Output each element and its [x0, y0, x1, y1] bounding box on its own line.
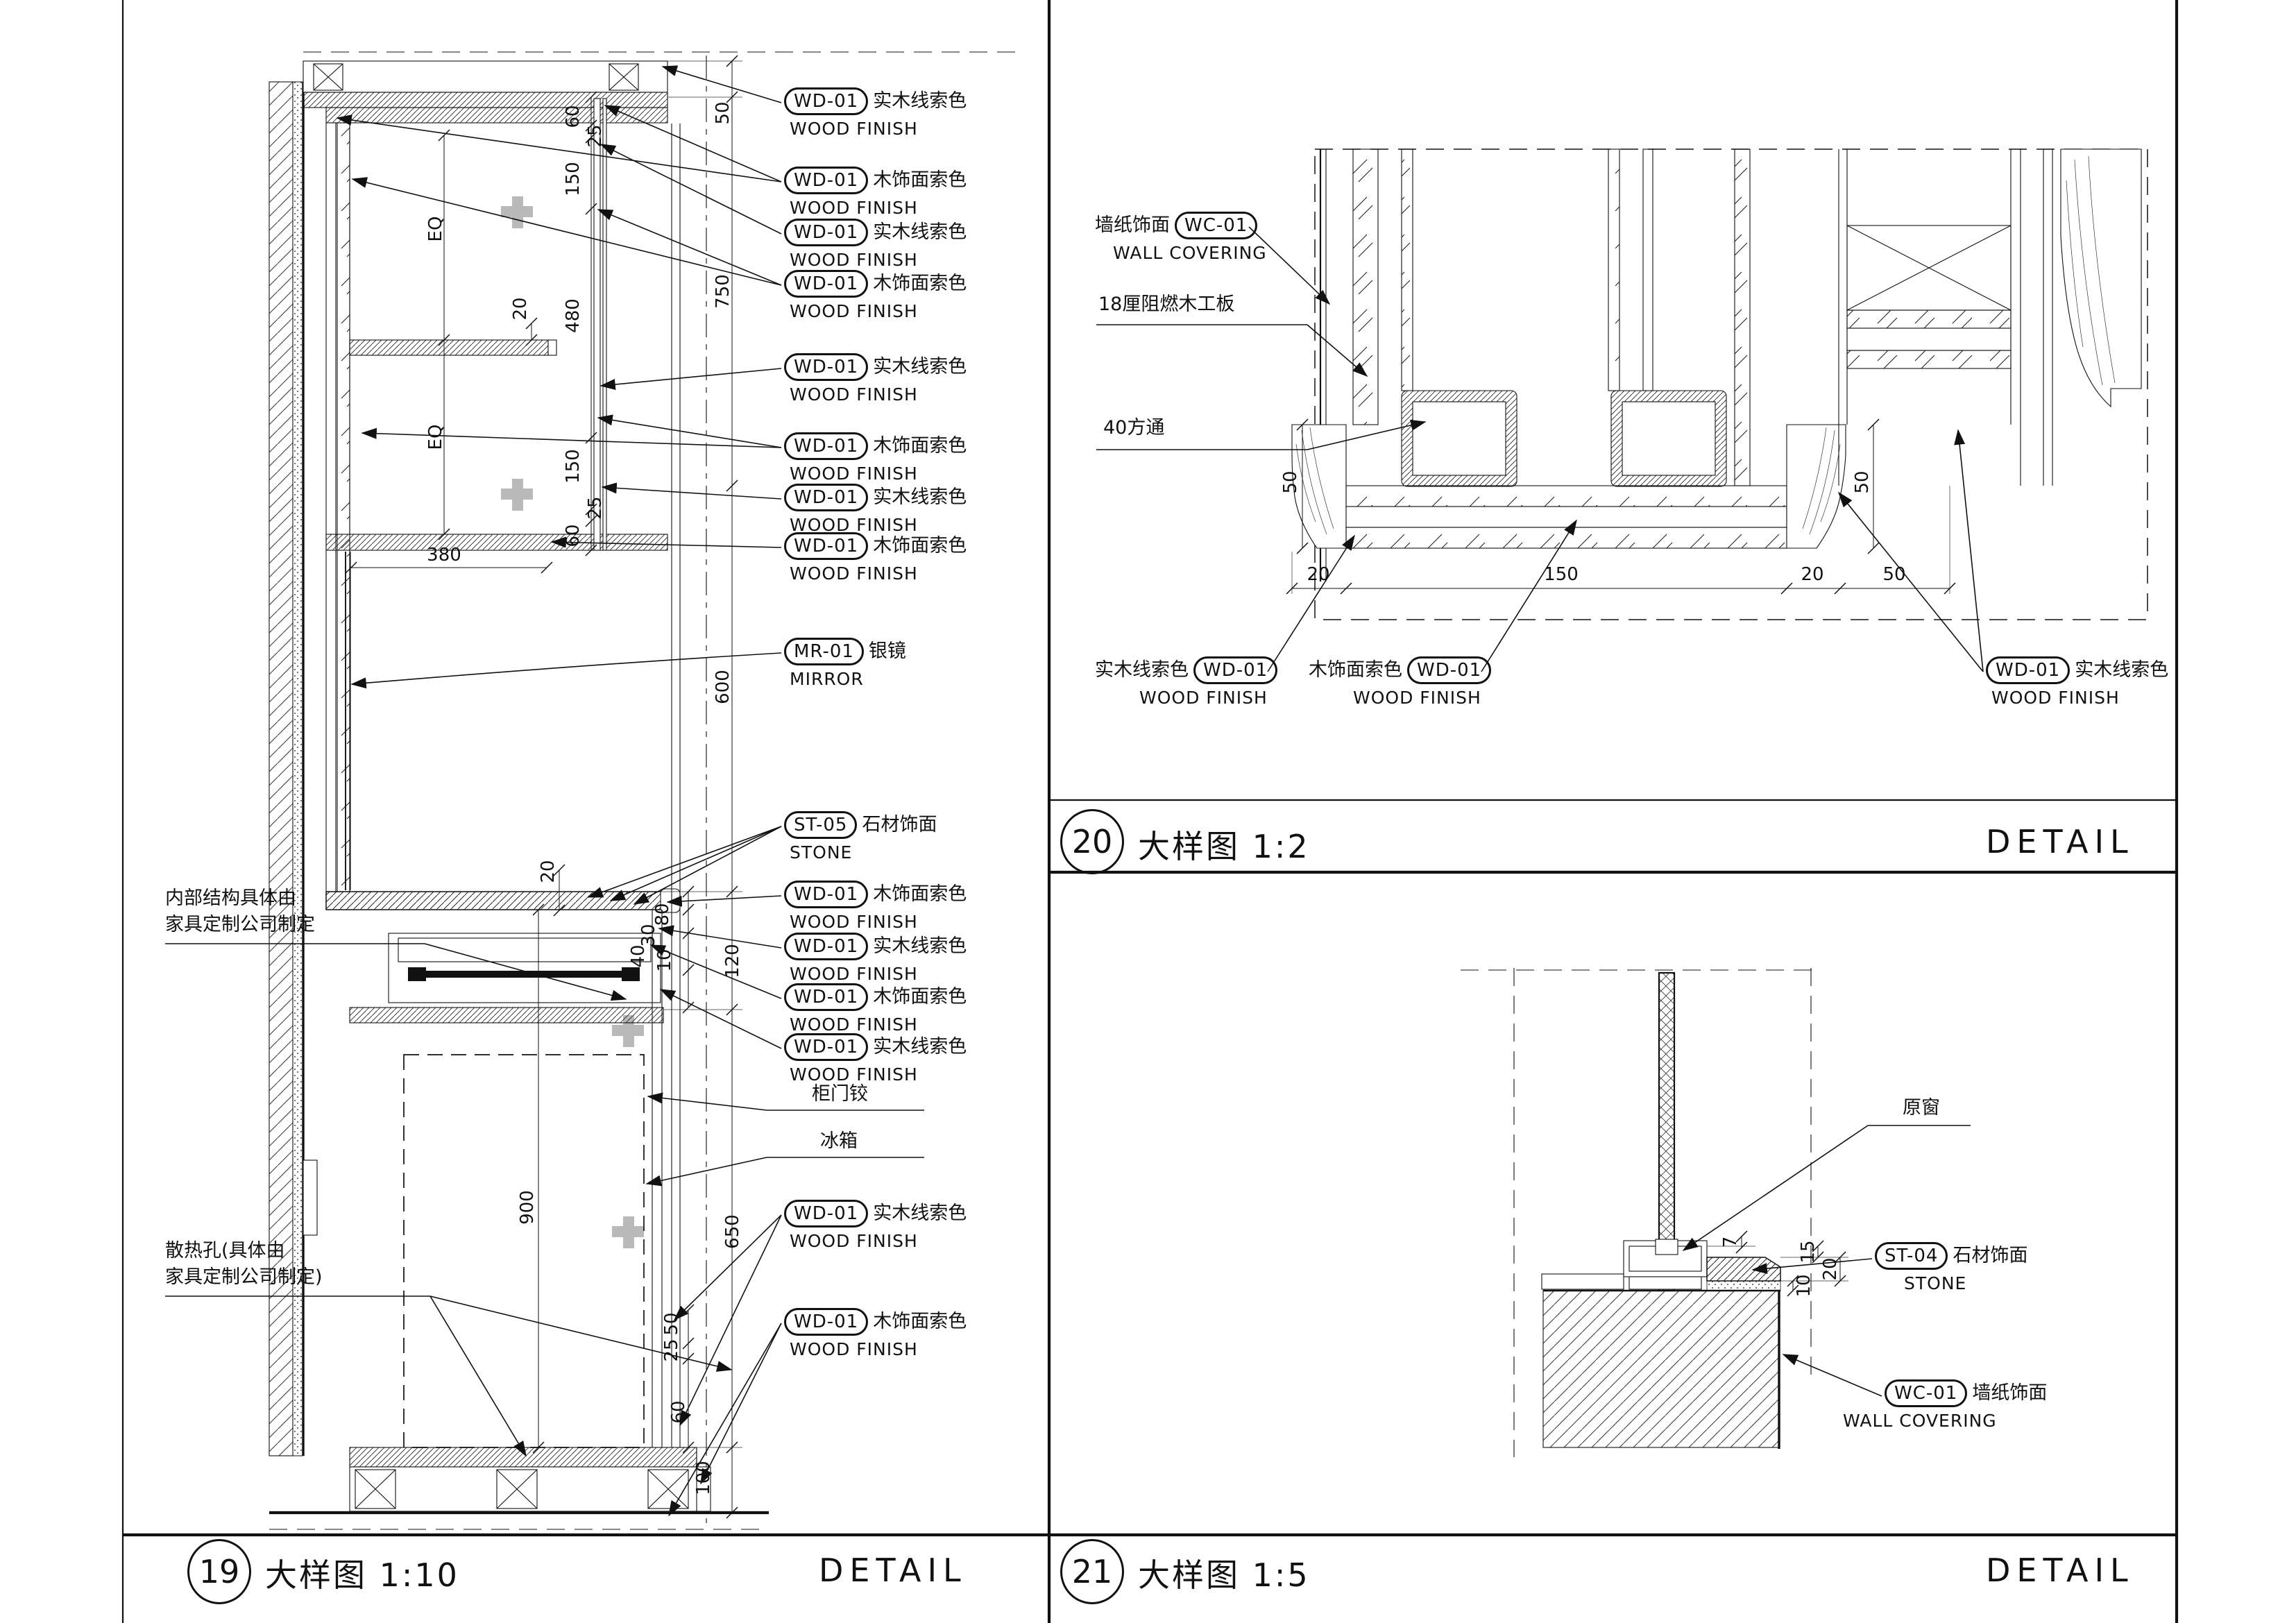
- material-name-cn: 木饰面索色: [873, 272, 967, 296]
- material-name-en: WOOD FINISH: [1139, 686, 1277, 710]
- material-name-cn: 实木线索色: [873, 1035, 967, 1059]
- dimension-text: 50: [1282, 470, 1300, 493]
- material-code-tag: MR-01: [784, 638, 864, 665]
- material-name-cn: 实木线索色: [873, 935, 967, 958]
- material-name-en: WOOD FINISH: [790, 300, 967, 323]
- material-label: WD-01木饰面索色WOOD FINISH: [784, 1308, 967, 1361]
- material-label: 墙纸饰面WC-01WALL COVERING: [1095, 212, 1267, 265]
- material-label: WD-01实木线索色WOOD FINISH: [784, 484, 967, 537]
- material-label: WD-01实木线索色WOOD FINISH: [784, 933, 967, 986]
- text-label: 冰箱: [820, 1128, 858, 1155]
- dimension-text: 100: [695, 1461, 713, 1495]
- material-code-tag: WD-01: [784, 933, 868, 960]
- detail-number-badge: 20: [1060, 809, 1124, 874]
- dimension-text: 480: [564, 298, 582, 333]
- sill-plate: [1542, 1274, 1624, 1289]
- material-code-tag: WD-01: [784, 1033, 868, 1061]
- text-label: 散热孔(具体由 家具定制公司制定): [165, 1238, 323, 1291]
- material-name-cn: 木饰面索色: [873, 1310, 967, 1334]
- dimension-text: 20: [511, 297, 529, 320]
- dimension-text: 30: [640, 924, 658, 946]
- material-name-en: WOOD FINISH: [790, 117, 967, 141]
- material-label: WD-01木饰面索色WOOD FINISH: [784, 270, 967, 323]
- material-name-cn: 实木线索色: [1095, 658, 1189, 682]
- stone-sill: [1707, 1257, 1780, 1281]
- material-name-cn: 石材饰面: [862, 813, 937, 837]
- wall-hatch: [1543, 1291, 1779, 1447]
- material-name-en: WOOD FINISH: [790, 248, 967, 272]
- material-code-tag: WD-01: [784, 484, 868, 511]
- text-label: 原窗: [1903, 1095, 1940, 1121]
- dimension-text: 25: [663, 1339, 681, 1361]
- material-label: 木饰面索色WD-01WOOD FINISH: [1309, 656, 1491, 710]
- material-name-en: WOOD FINISH: [790, 562, 967, 586]
- material-code-tag: WD-01: [784, 432, 868, 460]
- material-label: WD-01木饰面索色WOOD FINISH: [784, 983, 967, 1037]
- material-name-cn: 木饰面索色: [1309, 658, 1402, 682]
- dimension-text: 7: [1721, 1237, 1740, 1248]
- material-label: ST-05石材饰面STONE: [784, 811, 937, 865]
- text-label: 18厘阻燃木工板: [1098, 291, 1234, 318]
- material-name-cn: 实木线索色: [873, 486, 967, 509]
- dimension-text: EQ: [427, 425, 445, 450]
- material-name-cn: 银镜: [869, 640, 906, 663]
- material-name-cn: 墙纸饰面: [1972, 1382, 2047, 1405]
- dimension-text: 120: [724, 944, 742, 978]
- dimension-text: 60: [564, 524, 582, 547]
- material-label: WC-01墙纸饰面WALL COVERING: [1885, 1379, 2047, 1433]
- material-name-en: MIRROR: [790, 668, 906, 691]
- material-name-cn: 木饰面索色: [873, 169, 967, 192]
- material-label: WD-01实木线索色WOOD FINISH: [784, 1033, 967, 1087]
- detail-title-en: DETAIL: [819, 1552, 967, 1589]
- material-name-cn: 木饰面索色: [873, 985, 967, 1009]
- material-code-tag: WD-01: [1986, 656, 2070, 684]
- detail-title: 大样图 1:5: [1138, 1550, 1310, 1596]
- material-label: WD-01木饰面索色WOOD FINISH: [784, 167, 967, 220]
- plywood-board: [1353, 149, 1378, 425]
- material-label: WD-01实木线索色WOOD FINISH: [784, 87, 967, 141]
- text-label: 内部结构具体由 家具定制公司制定: [165, 885, 315, 938]
- material-code-tag: WC-01: [1885, 1379, 1967, 1407]
- dimension-text: 20: [1821, 1257, 1839, 1280]
- dimension-text: 25: [586, 496, 604, 519]
- material-name-en: STONE: [1904, 1272, 2027, 1295]
- material-name-en: WOOD FINISH: [790, 910, 967, 934]
- text-label: 柜门铰: [812, 1081, 868, 1107]
- material-name-cn: 木饰面索色: [873, 534, 967, 558]
- material-code-tag: WD-01: [784, 167, 868, 194]
- material-label: WD-01木饰面索色WOOD FINISH: [784, 532, 967, 586]
- material-label: WD-01木饰面索色WOOD FINISH: [784, 432, 967, 486]
- hinge-icon: [501, 479, 533, 511]
- dimension-text: 20: [1801, 566, 1823, 584]
- material-name-en: WOOD FINISH: [790, 196, 967, 220]
- wood-molding: [1787, 425, 1846, 548]
- material-label: 实木线索色WD-01WOOD FINISH: [1095, 656, 1277, 710]
- dimension-text: 80: [654, 903, 672, 926]
- material-name-en: WOOD FINISH: [790, 383, 967, 407]
- material-name-en: WALL COVERING: [1113, 241, 1267, 265]
- dimension-text: 50: [1853, 470, 1871, 493]
- dimension-text: 20: [1307, 566, 1329, 584]
- material-code-tag: WD-01: [1193, 656, 1277, 684]
- material-name-cn: 实木线索色: [873, 221, 967, 244]
- material-label: WD-01实木线索色WOOD FINISH: [784, 353, 967, 407]
- detail-title-en: DETAIL: [1986, 823, 2134, 860]
- material-label: WD-01实木线索色WOOD FINISH: [784, 219, 967, 272]
- dimension-text: 15: [1799, 1240, 1817, 1263]
- detail-number-badge: 19: [187, 1539, 251, 1604]
- material-name-cn: 墙纸饰面: [1095, 214, 1170, 237]
- dimension-text: 650: [724, 1214, 742, 1249]
- material-label: WD-01木饰面索色WOOD FINISH: [784, 881, 967, 934]
- hinge-icon: [612, 1216, 644, 1248]
- material-code-tag: WD-01: [784, 353, 868, 381]
- material-name-en: WOOD FINISH: [1991, 686, 2168, 710]
- detail-title: 大样图 1:10: [265, 1550, 459, 1596]
- material-name-en: WOOD FINISH: [790, 462, 967, 486]
- material-name-en: WALL COVERING: [1843, 1409, 2047, 1433]
- material-name-en: WOOD FINISH: [790, 962, 967, 986]
- material-code-tag: WD-01: [784, 881, 868, 908]
- dimension-text: 40: [629, 944, 647, 967]
- dimension-text: 600: [714, 670, 732, 704]
- material-code-tag: WD-01: [784, 532, 868, 560]
- dimension-text: EQ: [427, 216, 445, 242]
- material-code-tag: ST-05: [784, 811, 857, 839]
- dimension-text: 50: [714, 101, 732, 124]
- dimension-text: 25: [586, 124, 604, 147]
- detail-title-en: DETAIL: [1986, 1552, 2134, 1589]
- material-name-cn: 实木线索色: [873, 1202, 967, 1225]
- dimension-text: 750: [714, 274, 732, 309]
- shelf: [350, 340, 548, 355]
- material-code-tag: WD-01: [784, 983, 868, 1011]
- material-name-en: STONE: [790, 841, 937, 865]
- material-name-en: WOOD FINISH: [1353, 686, 1491, 710]
- material-label: ST-04石材饰面STONE: [1875, 1242, 2027, 1295]
- material-code-tag: WD-01: [784, 1308, 868, 1336]
- material-name-cn: 实木线索色: [873, 90, 967, 113]
- refrigerator-outline: [404, 1055, 644, 1447]
- material-code-tag: WD-01: [784, 219, 868, 246]
- material-code-tag: WD-01: [784, 1200, 868, 1227]
- drawing-sheet: WD-01实木线索色WOOD FINISHWD-01木饰面索色WOOD FINI…: [0, 0, 2296, 1623]
- crown-molding: [2061, 149, 2141, 407]
- dimension-text: 150: [1544, 566, 1579, 584]
- material-name-en: WOOD FINISH: [790, 1338, 967, 1361]
- material-code-tag: WC-01: [1175, 212, 1257, 239]
- dimension-text: 10: [656, 949, 674, 971]
- material-code-tag: WD-01: [1407, 656, 1491, 684]
- material-name-cn: 实木线索色: [2075, 658, 2168, 682]
- detail-title: 大样图 1:2: [1138, 822, 1310, 867]
- dimension-text: 150: [564, 449, 582, 484]
- material-code-tag: ST-04: [1875, 1242, 1948, 1270]
- material-name-cn: 石材饰面: [1953, 1244, 2027, 1268]
- material-label: WD-01实木线索色WOOD FINISH: [1986, 656, 2168, 710]
- material-code-tag: WD-01: [784, 87, 868, 115]
- detail-number-badge: 21: [1060, 1539, 1124, 1604]
- dimension-text: 380: [427, 546, 461, 564]
- dimension-text: 50: [663, 1312, 681, 1335]
- material-name-en: WOOD FINISH: [790, 1230, 967, 1253]
- dimension-text: 20: [539, 860, 557, 883]
- material-name-cn: 木饰面索色: [873, 883, 967, 906]
- material-label: WD-01实木线索色WOOD FINISH: [784, 1200, 967, 1253]
- text-label: 40方通: [1103, 415, 1164, 441]
- dimension-text: 60: [564, 105, 582, 128]
- dimension-text: 900: [518, 1190, 536, 1225]
- dimension-text: 50: [1882, 566, 1905, 584]
- material-name-cn: 木饰面索色: [873, 434, 967, 458]
- hinge-icon: [501, 196, 533, 228]
- dimension-text: 60: [670, 1400, 688, 1423]
- material-label: MR-01银镜MIRROR: [784, 638, 906, 691]
- dimension-text: 150: [564, 162, 582, 196]
- material-name-cn: 实木线索色: [873, 355, 967, 379]
- dimension-text: 10: [1795, 1274, 1813, 1297]
- material-code-tag: WD-01: [784, 270, 868, 298]
